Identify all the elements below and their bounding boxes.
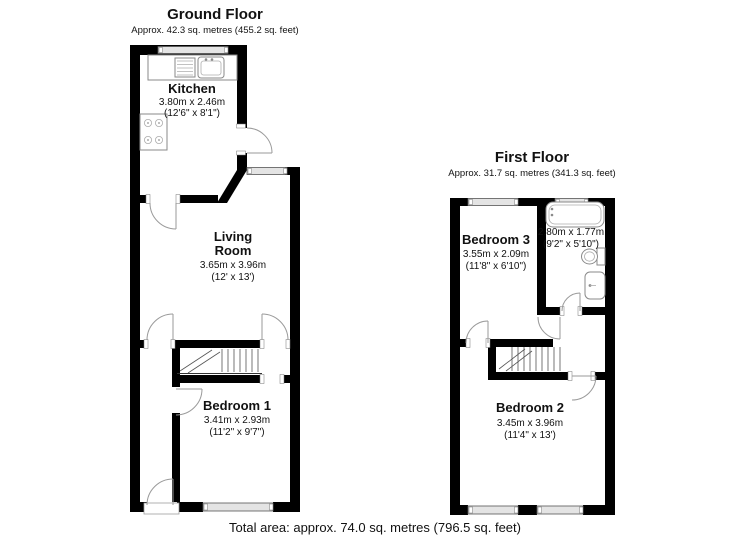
bedroom1-label: Bedroom 1 xyxy=(203,398,271,413)
first-floor-subtitle: Approx. 31.7 sq. metres (341.3 sq. feet) xyxy=(448,168,615,179)
kitchen-living-door xyxy=(150,203,176,229)
ground-floor-subtitle: Approx. 42.3 sq. metres (455.2 sq. feet) xyxy=(131,25,298,36)
kitchen-sink-icon xyxy=(198,57,224,78)
window xyxy=(247,168,287,175)
total-area-label: Total area: approx. 74.0 sq. metres (796… xyxy=(229,520,521,535)
stove-icon xyxy=(140,114,167,150)
staircase xyxy=(177,349,262,374)
staircase xyxy=(499,347,560,371)
bedroom2-label: Bedroom 2 xyxy=(496,400,564,415)
living-room-dims-imperial: (12' x 13') xyxy=(211,272,254,283)
first-floor-title: First Floor xyxy=(495,149,569,166)
living-room-dims-metric: 3.65m x 3.96m xyxy=(200,260,266,271)
draining-board-icon xyxy=(175,58,195,77)
window xyxy=(158,47,228,54)
front-door xyxy=(147,479,173,505)
bedroom1-door xyxy=(176,389,202,415)
kitchen-back-door xyxy=(247,128,272,153)
front-door-threshold xyxy=(144,503,179,514)
bedroom1-dims-metric: 3.41m x 2.93m xyxy=(204,415,270,426)
bathroom-dims-metric: 2.80m x 1.77m xyxy=(538,227,604,238)
first-floor-plan: First Floor Approx. 31.7 sq. metres (341… xyxy=(448,149,615,515)
landing-door xyxy=(538,317,560,339)
ground-floor-plan: Ground Floor Approx. 42.3 sq. metres (45… xyxy=(130,6,300,514)
basin-icon xyxy=(585,272,605,299)
hallway-door xyxy=(147,314,173,340)
living-room-label-line1: Living xyxy=(214,229,252,244)
bedroom3-dims-metric: 3.55m x 2.09m xyxy=(463,249,529,260)
ground-floor-title: Ground Floor xyxy=(167,6,263,23)
window xyxy=(468,199,518,206)
diagonal-wall xyxy=(217,170,247,203)
bedroom3-label: Bedroom 3 xyxy=(462,232,530,247)
kitchen-label: Kitchen xyxy=(168,81,216,96)
floorplan-canvas: Ground Floor Approx. 42.3 sq. metres (45… xyxy=(0,0,750,545)
bathroom-dims-imperial: (9'2" x 5'10") xyxy=(543,239,599,250)
bathtub-icon xyxy=(546,202,604,227)
bedroom2-dims-imperial: (11'4" x 13') xyxy=(504,430,556,441)
toilet-icon xyxy=(582,248,606,265)
kitchen-dims-metric: 3.80m x 2.46m xyxy=(159,97,225,108)
stairs-door xyxy=(262,314,288,340)
window xyxy=(537,506,583,514)
floorplan-page: Ground Floor Approx. 42.3 sq. metres (45… xyxy=(0,0,750,545)
bathroom-door xyxy=(562,293,580,311)
bedroom3-dims-imperial: (11'8" x 6'10") xyxy=(466,261,527,272)
living-room-label-line2: Room xyxy=(215,243,252,258)
window xyxy=(468,506,518,514)
bedroom2-dims-metric: 3.45m x 3.96m xyxy=(497,418,563,429)
kitchen-dims-imperial: (12'6" x 8'1") xyxy=(164,108,220,119)
window xyxy=(203,503,273,511)
bedroom1-dims-imperial: (11'2" x 9'7") xyxy=(209,427,264,438)
